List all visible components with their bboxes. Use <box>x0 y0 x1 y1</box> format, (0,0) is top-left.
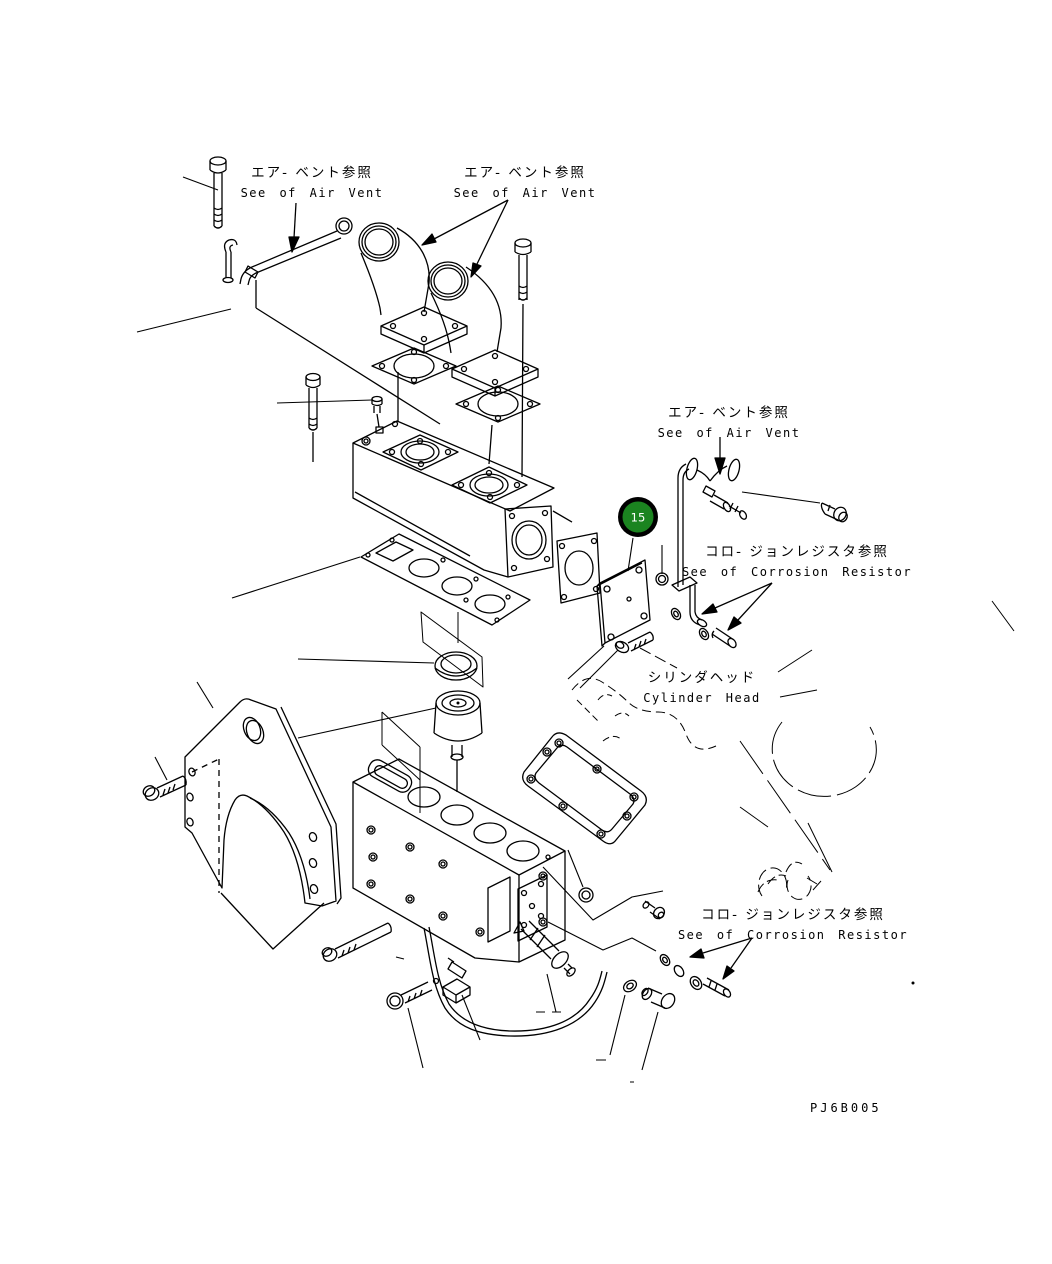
label-air-vent-top-center-jp: エア- ベント参照 <box>454 161 597 181</box>
label-air-vent-top-left-en: See of Air Vent <box>241 186 384 200</box>
cover-gasket <box>523 733 647 844</box>
washer <box>621 978 638 994</box>
thermostat-housing-block <box>353 757 565 962</box>
reference-arrows <box>289 200 772 979</box>
plug <box>640 987 677 1011</box>
bolt <box>210 157 226 228</box>
label-air-vent-right-jp: エア- ベント参照 <box>658 401 801 421</box>
parts-diagram-page: 15 エア- ベント参照 See of Air Vent エア- ベント参照 S… <box>0 0 1052 1264</box>
nut <box>656 573 668 585</box>
bolt <box>306 374 320 463</box>
elbow-pipe <box>428 262 538 396</box>
flange-gasket <box>456 386 540 422</box>
plug <box>642 901 667 921</box>
elbow-pipe <box>359 223 467 353</box>
breather-fitting <box>372 397 383 434</box>
label-corrosion-resistor-lower: コロ- ジョンレジスタ参照 See of Corrosion Resistor <box>678 903 908 942</box>
bolt <box>321 923 392 964</box>
cover-plate <box>597 560 650 646</box>
label-cylinder-head: シリンダヘッド Cylinder Head <box>643 666 760 705</box>
label-corrosion-resistor-upper: コロ- ジョンレジスタ参照 See of Corrosion Resistor <box>682 540 912 579</box>
label-air-vent-top-left-jp: エア- ベント参照 <box>241 161 384 181</box>
mounting-bracket <box>185 699 341 949</box>
bolt <box>821 503 849 523</box>
label-cylinder-head-jp: シリンダヘッド <box>643 666 760 686</box>
air-vent-tube <box>223 218 440 424</box>
manifold-gasket <box>361 534 530 625</box>
label-air-vent-top-center: エア- ベント参照 See of Air Vent <box>454 161 597 200</box>
label-corrosion-resistor-lower-en: See of Corrosion Resistor <box>678 928 908 942</box>
callout-number: 15 <box>631 511 646 525</box>
drawing-code: PJ6B005 <box>810 1101 882 1115</box>
label-air-vent-right: エア- ベント参照 See of Air Vent <box>658 401 801 440</box>
bolt <box>387 979 439 1010</box>
flange-gasket <box>372 348 456 384</box>
label-cylinder-head-en: Cylinder Head <box>643 691 760 705</box>
wire-harness <box>424 927 607 1036</box>
label-corrosion-resistor-lower-jp: コロ- ジョンレジスタ参照 <box>678 903 908 923</box>
label-air-vent-top-left: エア- ベント参照 See of Air Vent <box>241 161 384 200</box>
part-callout-15[interactable]: 15 <box>618 497 658 537</box>
label-corrosion-resistor-upper-en: See of Corrosion Resistor <box>682 565 912 579</box>
projection-lines <box>382 612 483 813</box>
label-air-vent-top-center-en: See of Air Vent <box>454 186 597 200</box>
label-corrosion-resistor-upper-jp: コロ- ジョンレジスタ参照 <box>682 540 912 560</box>
water-manifold <box>353 372 572 577</box>
nut <box>579 888 593 902</box>
elbow-fitting <box>690 585 738 649</box>
label-air-vent-right-en: See of Air Vent <box>658 426 801 440</box>
thermostat <box>434 691 482 792</box>
bolt <box>515 239 531 477</box>
corrosion-resistor-fittings <box>658 953 732 999</box>
bolt <box>141 776 186 803</box>
end-gasket-plate <box>557 533 600 603</box>
